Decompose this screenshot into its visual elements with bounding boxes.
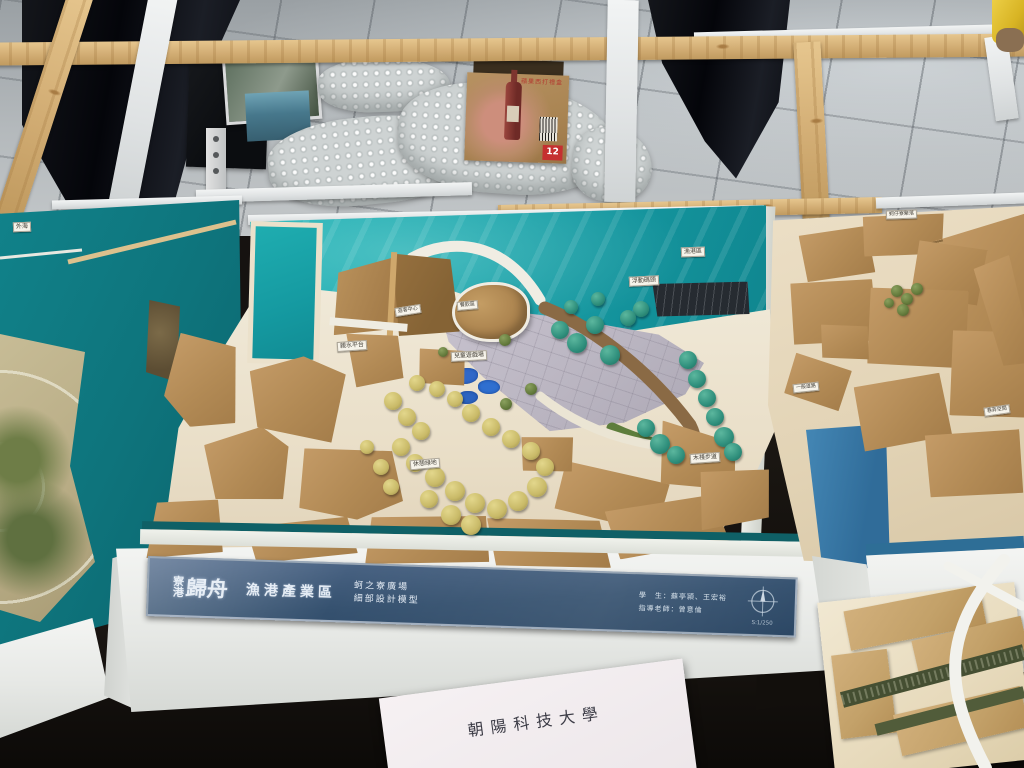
site-label: 蚵仔寮聚落 [886, 209, 917, 219]
site-label: 浮動碼頭 [629, 275, 660, 287]
green-hatched-band [876, 692, 1024, 730]
exhibition-photo: 蘋果西打禮盒 12 [0, 0, 1024, 768]
site-label: 漁港區 [681, 247, 705, 258]
site-label: 木棧步道 [690, 452, 721, 464]
site-label: 外海 [13, 222, 31, 233]
university-name: 朝陽科技大學 [383, 688, 690, 752]
flat-model-details-layer [0, 0, 1024, 768]
site-label: 兒童遊戲場 [451, 350, 488, 362]
site-label: 親水平台 [337, 340, 368, 352]
site-label: 餐飲區 [457, 300, 479, 311]
green-hatched-band [842, 652, 1024, 700]
